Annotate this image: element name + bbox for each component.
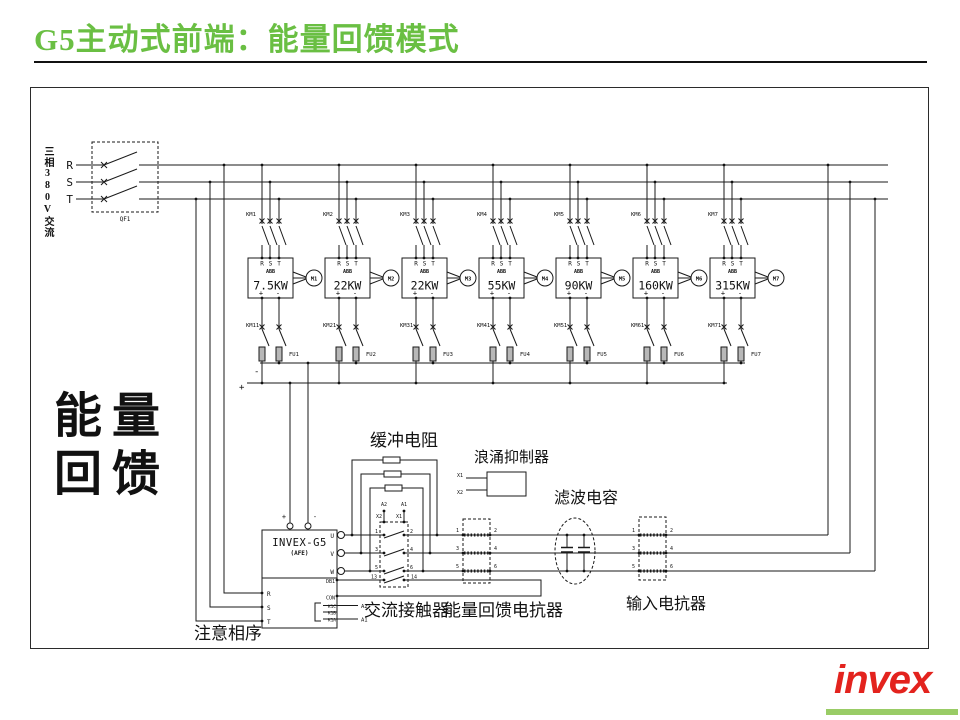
page-title: G5主动式前端：能量回馈模式 bbox=[34, 14, 460, 59]
ac-contactor-label: 交流接触器 bbox=[364, 596, 449, 621]
diagram-frame bbox=[30, 87, 929, 649]
invex-unit-subtitle: (AFE) bbox=[262, 550, 337, 557]
buffer-resistor-label: 缓冲电阻 bbox=[370, 426, 438, 451]
energy-feedback-caption: 能量 回馈 bbox=[54, 388, 170, 503]
three-phase-supply-label: 三相380V交流 bbox=[40, 146, 55, 224]
energy-feedback-line2: 回馈 bbox=[54, 446, 170, 504]
filter-capacitor-label: 滤波电容 bbox=[554, 484, 618, 508]
regen-reactor-label: 能量回馈电抗器 bbox=[444, 596, 563, 621]
invex-unit-name: INVEX-G5 bbox=[262, 537, 337, 549]
input-reactor-label: 输入电抗器 bbox=[626, 590, 706, 614]
logo-underline bbox=[826, 709, 958, 715]
invex-logo: invex bbox=[834, 658, 931, 703]
slide: G5主动式前端：能量回馈模式 三相380V交流 能量 回馈 bbox=[0, 0, 960, 720]
energy-feedback-line1: 能量 bbox=[54, 388, 170, 446]
surge-suppressor-label: 浪涌抑制器 bbox=[474, 446, 549, 467]
phase-sequence-note: 注意相序 bbox=[194, 619, 262, 644]
title-underline bbox=[34, 61, 927, 63]
